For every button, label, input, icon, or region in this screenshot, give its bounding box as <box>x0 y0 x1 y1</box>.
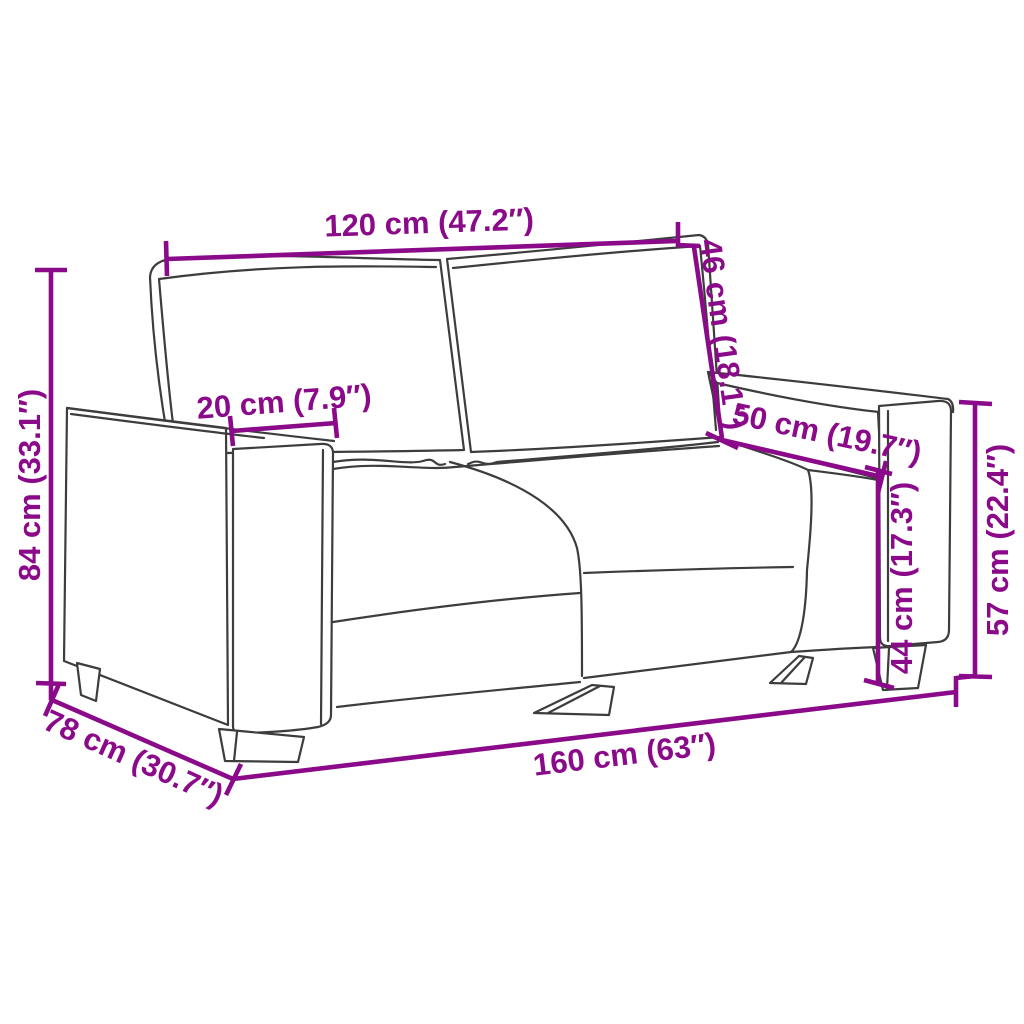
dim-armrest-height-label: 57 cm (22.4″) <box>980 444 1015 636</box>
seat-center-seam <box>450 462 582 676</box>
dim-seat-height-label: 44 cm (17.3″) <box>884 482 919 674</box>
seat-right-edge <box>721 439 812 652</box>
middle-sled-leg <box>534 685 614 715</box>
dim-backrest-width-label: 120 cm (47.2″) <box>324 201 535 243</box>
base-bottom-right <box>584 647 877 678</box>
right-sled-leg <box>770 656 813 684</box>
seat-left-front-seam <box>333 593 580 622</box>
dim-overall-width-label: 160 cm (63″) <box>531 726 718 783</box>
backrest-right-cushion <box>447 235 721 452</box>
left-arm-front-face <box>233 444 333 733</box>
sofa-dimension-svg: 120 cm (47.2″) 46 cm (18.1″) 20 cm (7.9″… <box>0 0 1024 1024</box>
dimension-diagram: 120 cm (47.2″) 46 cm (18.1″) 20 cm (7.9″… <box>0 0 1024 1024</box>
sofa-line-art <box>64 235 953 762</box>
dim-overall-height-label: 84 cm (33.1″) <box>12 389 47 581</box>
left-rear-leg <box>77 663 100 701</box>
left-front-leg <box>219 729 304 762</box>
seat-right-front-seam <box>584 567 793 573</box>
base-bottom-left <box>337 682 580 707</box>
dim-overall-depth-label: 78 cm (30.7″) <box>39 703 229 813</box>
